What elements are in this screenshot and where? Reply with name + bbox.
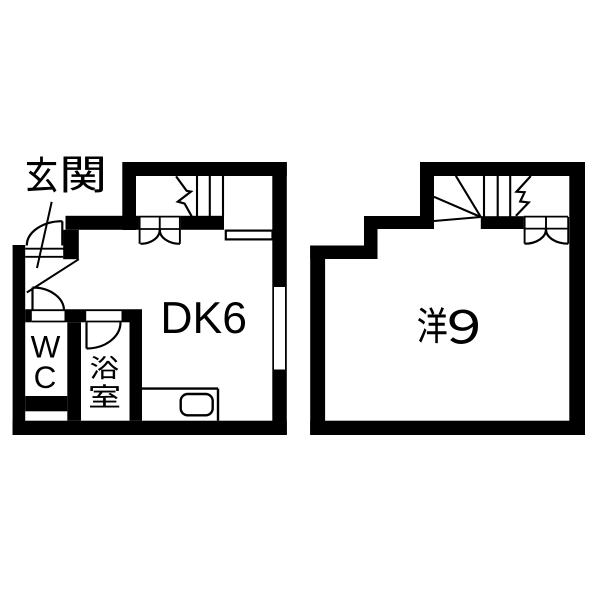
- svg-text:DK6: DK6: [160, 294, 247, 343]
- svg-text:C: C: [34, 359, 57, 395]
